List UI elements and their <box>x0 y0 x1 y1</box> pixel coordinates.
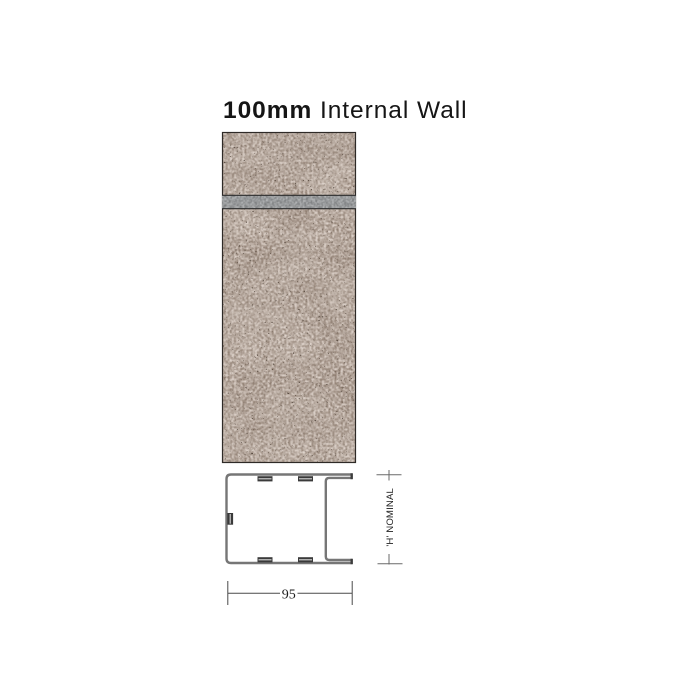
svg-text:95: 95 <box>282 588 296 603</box>
svg-text:'H' NOMINAL: 'H' NOMINAL <box>385 487 396 546</box>
